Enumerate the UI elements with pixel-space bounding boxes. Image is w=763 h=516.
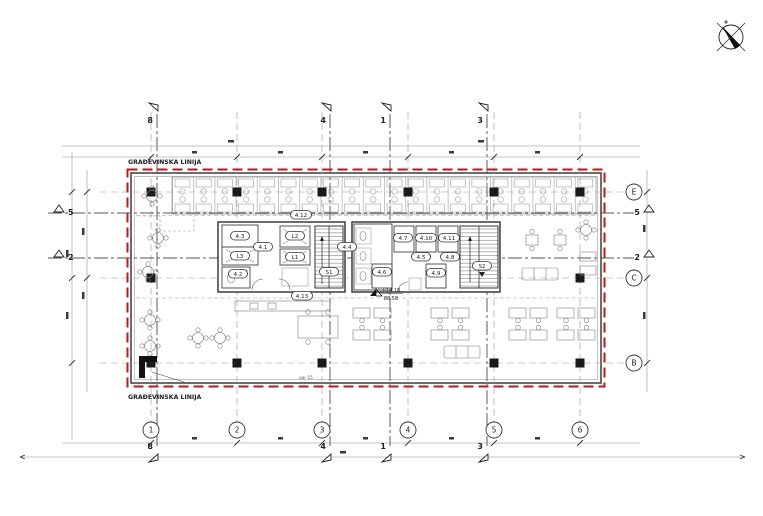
room-label-4-6: 4.6 — [373, 268, 392, 277]
svg-text:4.2: 4.2 — [234, 272, 243, 278]
room-label-4-5: 4.5 — [412, 253, 431, 262]
svg-text:4.4: 4.4 — [343, 245, 352, 251]
floor-plan-drawing: 4.3 L3 4.2 4.1 L2 L1 S1 4.4 4.7 4.10 4.1… — [0, 0, 763, 516]
svg-text:4.6: 4.6 — [378, 270, 387, 276]
floor-plan-sheet: 4.3 L3 4.2 4.1 L2 L1 S1 4.4 4.7 4.10 4.1… — [0, 0, 763, 516]
room-label-l2: L2 — [286, 232, 305, 241]
room-label-l1: L1 — [286, 253, 305, 262]
svg-text:4.9: 4.9 — [432, 271, 441, 277]
building-line-caption-bottom: GRAĐEVINSKA LINIJA — [128, 394, 202, 401]
svg-text:1: 1 — [380, 442, 386, 451]
svg-text:4.11: 4.11 — [443, 236, 456, 242]
svg-text:1: 1 — [149, 426, 154, 435]
room-label-4-3: 4.3 — [231, 232, 250, 241]
svg-text:5: 5 — [68, 208, 74, 217]
svg-text:4: 4 — [320, 116, 326, 125]
section-flags-top: 8 4 1 3 — [147, 103, 488, 125]
svg-text:88.58: 88.58 — [384, 296, 398, 302]
room-label-4-12: 4.12 — [291, 211, 312, 220]
svg-text:4: 4 — [406, 426, 411, 435]
svg-text:3: 3 — [477, 116, 483, 125]
svg-text:8: 8 — [147, 442, 153, 451]
room-label-4-10: 4.10 — [416, 234, 437, 243]
svg-text:+14.18: +14.18 — [382, 288, 401, 294]
svg-text:4.12: 4.12 — [295, 213, 307, 219]
svg-text:L1: L1 — [292, 255, 299, 261]
svg-text:4.13: 4.13 — [296, 294, 309, 300]
svg-text:4.1: 4.1 — [259, 245, 268, 251]
svg-text:8: 8 — [147, 116, 153, 125]
room-label-4-13: 4.13 — [292, 292, 313, 301]
svg-text:E: E — [632, 188, 637, 197]
room-label-4-9: 4.9 — [427, 269, 446, 278]
svg-text:6: 6 — [578, 426, 583, 435]
svg-text:3: 3 — [477, 442, 483, 451]
svg-text:5: 5 — [634, 208, 640, 217]
north-arrow-icon — [717, 20, 745, 51]
par-note: par 15 — [299, 375, 313, 380]
room-label-4-1: 4.1 — [254, 243, 273, 252]
svg-text:4.10: 4.10 — [420, 236, 433, 242]
svg-text:1: 1 — [380, 116, 386, 125]
svg-text:2: 2 — [235, 426, 240, 435]
svg-text:L3: L3 — [237, 254, 244, 260]
svg-text:4.8: 4.8 — [446, 255, 455, 261]
svg-text:B: B — [631, 359, 636, 368]
svg-text:4.7: 4.7 — [399, 236, 408, 242]
svg-text:2: 2 — [68, 253, 74, 262]
svg-text:4: 4 — [320, 442, 326, 451]
svg-text:5: 5 — [492, 426, 497, 435]
room-label-4-4: 4.4 — [338, 243, 357, 252]
room-label-s1: S1 — [320, 268, 339, 277]
svg-text:2: 2 — [634, 253, 640, 262]
svg-text:4.3: 4.3 — [236, 234, 245, 240]
room-label-4-7: 4.7 — [394, 234, 413, 243]
svg-text:3: 3 — [320, 426, 325, 435]
section-flags-bottom: 8 4 1 3 — [147, 442, 488, 462]
building-line-caption-top: GRAĐEVINSKA LINIJA — [128, 159, 202, 166]
room-label-l3: L3 — [231, 252, 250, 261]
svg-text:L2: L2 — [292, 234, 299, 240]
grid-bubbles-columns: 1 2 3 4 5 6 — [143, 422, 588, 438]
svg-text:4.5: 4.5 — [417, 255, 426, 261]
svg-text:S2: S2 — [478, 264, 485, 270]
room-label-4-11: 4.11 — [439, 234, 460, 243]
room-label-4-2: 4.2 — [229, 270, 248, 279]
svg-text:S1: S1 — [325, 270, 333, 276]
svg-text:C: C — [631, 274, 636, 283]
room-label-4-8: 4.8 — [441, 253, 460, 262]
